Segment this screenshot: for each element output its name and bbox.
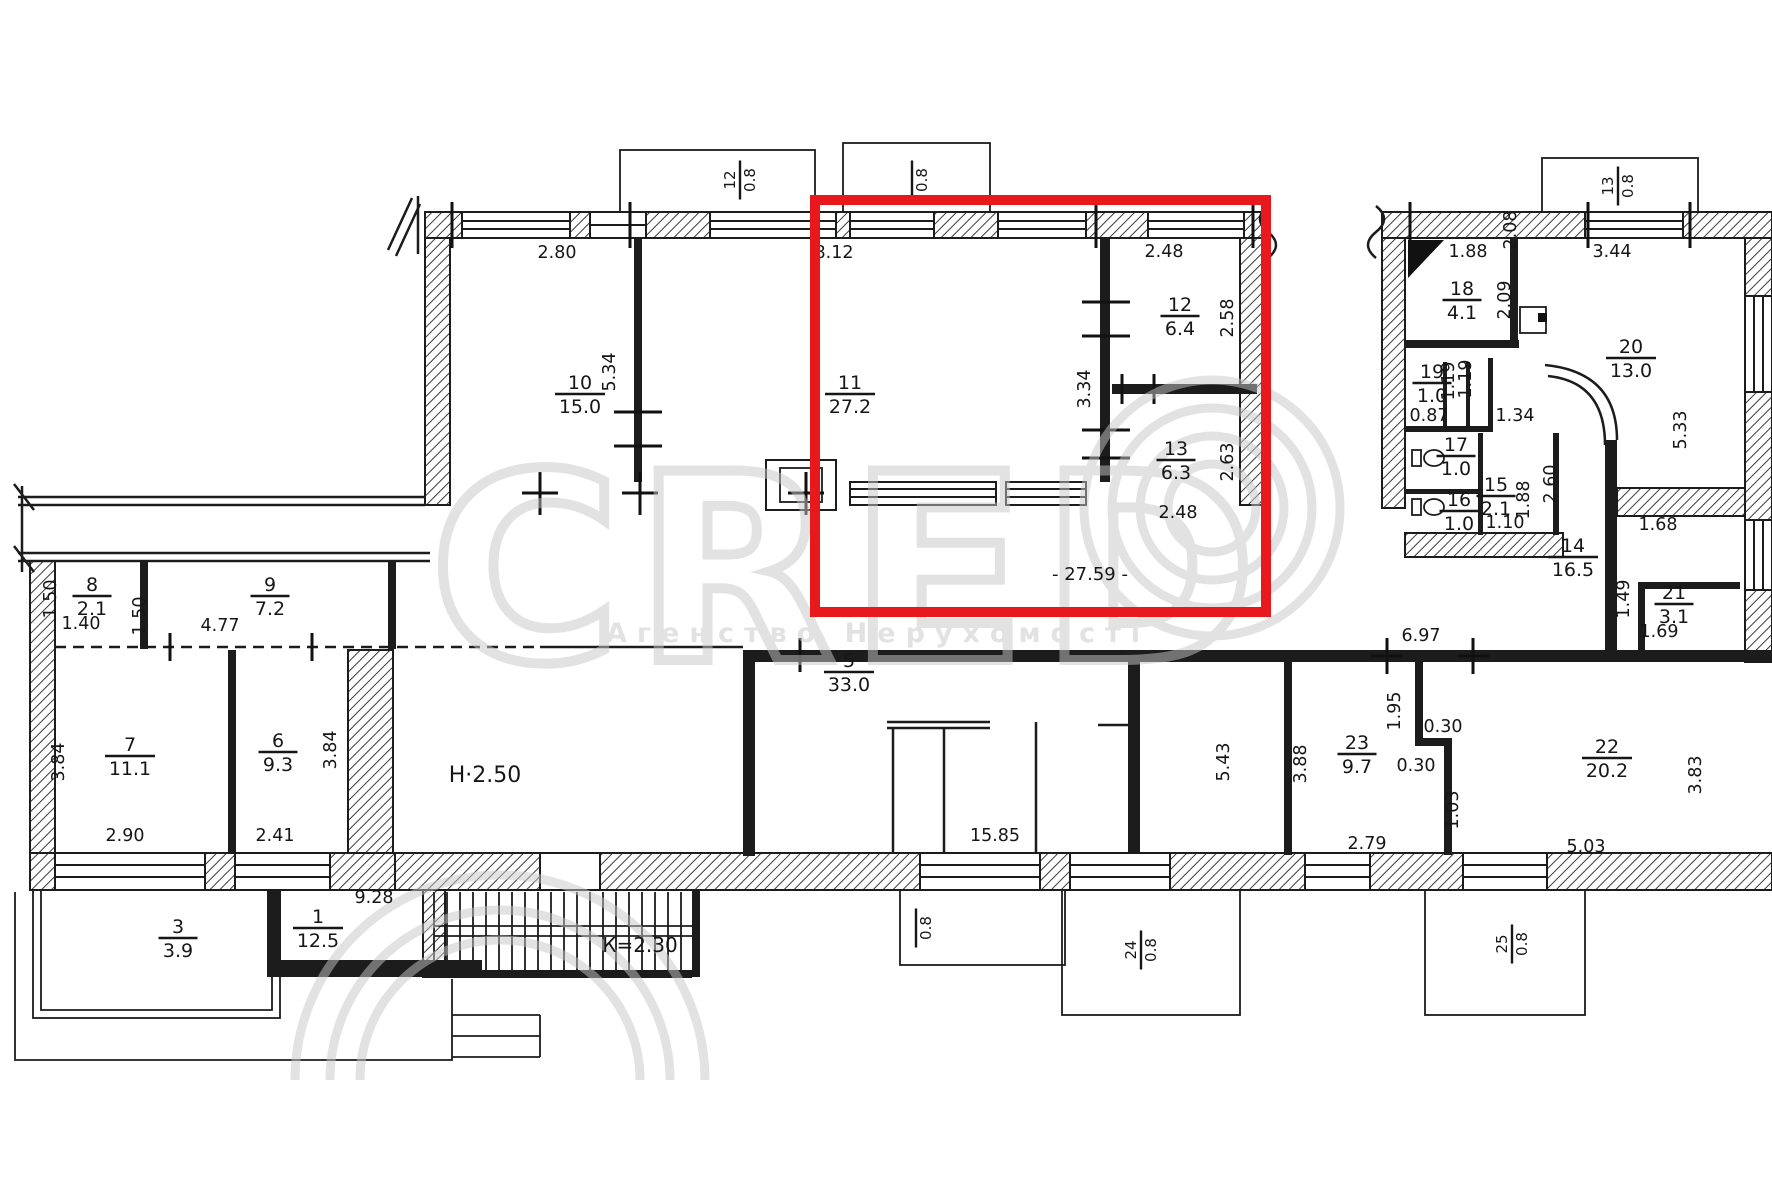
dimension-label: 5.34: [600, 353, 620, 392]
room-label-area: 1.0: [1441, 458, 1471, 480]
balcony-label: 130.8: [1599, 167, 1637, 206]
balcony-label-area: 0.8: [1513, 932, 1531, 956]
dimension-label: 1.50: [130, 597, 150, 636]
room-label-area: 33.0: [828, 674, 870, 696]
dimension-label: 9.28: [355, 888, 394, 908]
room-label-number: 14: [1561, 535, 1585, 557]
room-label-area: 12.5: [297, 930, 339, 952]
dimension-label: 1.69: [1640, 622, 1679, 642]
dimension-label: 2.63: [1218, 443, 1238, 482]
annotation-label: К=2.30: [602, 933, 678, 957]
room-label-number: 12: [1168, 294, 1192, 316]
dimension-label: 5.03: [1567, 837, 1606, 857]
room-label: 711.1: [105, 734, 155, 780]
dimension-label: 1.49: [1614, 580, 1634, 619]
annotation-label: Н·2.50: [449, 763, 522, 788]
dimension-label: 2.90: [106, 826, 145, 846]
room-label-number: 9: [264, 574, 276, 596]
balcony-label-area: 0.8: [1619, 174, 1637, 198]
dimension-label: 0.87: [1410, 406, 1449, 426]
dimension-label: 1.88: [1514, 481, 1534, 520]
room-label-area: 9.3: [263, 754, 293, 776]
dimension-label: 2.58: [1218, 299, 1238, 338]
room-label-number: 15: [1484, 474, 1508, 496]
room-label-number: 21: [1662, 582, 1686, 604]
dimension-label: 2.60: [1541, 465, 1561, 504]
room-label-number: 10: [568, 372, 592, 394]
dimension-label: 2.09: [1495, 281, 1515, 320]
dimension-label: 2.48: [1145, 242, 1184, 262]
room-label: 239.7: [1338, 732, 1377, 778]
toilet-icon: [1412, 450, 1444, 466]
dimension-label: 6.97: [1402, 626, 1441, 646]
room-label-number: 17: [1444, 434, 1468, 456]
room-label-number: 7: [124, 734, 136, 756]
dimension-label: 1.68: [1639, 515, 1678, 535]
balcony-label-number: 25: [1493, 934, 1511, 953]
room-label: 161.0: [1440, 489, 1479, 535]
dimension-label: 1.03: [1443, 791, 1463, 830]
dimension-label: 15.85: [970, 826, 1020, 846]
balcony-label-number: 13: [1599, 176, 1617, 195]
room-label-number: 23: [1345, 732, 1369, 754]
room-label-number: 3: [172, 916, 184, 938]
annotation-label: - 27.59 -: [1052, 564, 1128, 585]
room-label-number: 20: [1619, 336, 1643, 358]
balcony-label-area: 0.8: [913, 168, 931, 192]
room-label-number: 16: [1447, 489, 1471, 511]
room-label-area: 4.1: [1447, 302, 1477, 324]
dimension-label: 3.34: [1075, 370, 1095, 409]
dimension-label: 3.84: [321, 731, 341, 770]
room-label: 33.9: [159, 916, 198, 962]
room-label: 126.4: [1161, 294, 1200, 340]
dimension-label: 2.48: [1159, 503, 1198, 523]
floorplan-drawing: CRED Агенство Нерухомості 1015.01127.212…: [0, 0, 1772, 1181]
dimension-label: 2.08: [1501, 211, 1521, 250]
room-label-area: 9.7: [1342, 756, 1372, 778]
dimension-label: 3.44: [1593, 242, 1632, 262]
room-label: 1127.2: [825, 372, 875, 418]
room-label-number: 11: [838, 372, 862, 394]
watermark-subtitle: Агенство Нерухомості: [606, 618, 1150, 649]
balcony-label: 120.8: [721, 161, 759, 200]
room-label-number: 18: [1450, 278, 1474, 300]
dimension-label: 1.19: [1456, 360, 1476, 399]
room-label-area: 1.0: [1444, 513, 1474, 535]
balcony-label: 250.8: [1493, 925, 1531, 964]
dimension-label: 3.84: [49, 743, 69, 782]
room-label-number: 5: [843, 650, 855, 672]
room-label-area: 20.2: [1586, 760, 1628, 782]
room-label-area: 16.5: [1552, 559, 1594, 581]
balcony-label-number: 24: [1122, 940, 1140, 959]
dimension-label: 1.95: [1385, 692, 1405, 731]
room-label-number: 22: [1595, 736, 1619, 758]
balcony-label: 240.8: [1122, 931, 1160, 970]
room-label: 171.0: [1437, 434, 1476, 480]
room-label: 69.3: [259, 730, 298, 776]
dimension-label: 3.83: [1686, 756, 1706, 795]
balcony-label-area: 0.8: [741, 168, 759, 192]
dimension-label: 2.41: [256, 826, 295, 846]
shaft-box-inner: [1538, 313, 1547, 322]
toilet-icon: [1412, 499, 1444, 515]
room-label: 112.5: [293, 906, 343, 952]
dimension-label: 5.43: [1214, 743, 1234, 782]
room-label: 2013.0: [1606, 336, 1656, 382]
dimension-label: 1.34: [1496, 406, 1535, 426]
dimension-label: 1.40: [62, 614, 101, 634]
floorplan-page: CRED Агенство Нерухомості 1015.01127.212…: [0, 0, 1772, 1181]
room-label: 2220.2: [1582, 736, 1632, 782]
room-label-area: 11.1: [109, 758, 151, 780]
room-label: 184.1: [1443, 278, 1482, 324]
balcony-label-area: 0.8: [1142, 938, 1160, 962]
balcony-label-number: 12: [721, 170, 739, 189]
room-label-number: 8: [86, 574, 98, 596]
balcony-label-area: 0.8: [917, 916, 935, 940]
dimension-label: 0.30: [1397, 756, 1436, 776]
dimension-label: 4.77: [201, 616, 240, 636]
room-label-area: 15.0: [559, 396, 601, 418]
room-label-number: 6: [272, 730, 284, 752]
dimension-label: 1.88: [1449, 242, 1488, 262]
room-label-number: 1: [312, 906, 324, 928]
room-label-number: 13: [1164, 438, 1188, 460]
room-label-area: 6.4: [1165, 318, 1195, 340]
dimension-label: 1.50: [41, 580, 61, 619]
balcony-label: 0.8: [912, 161, 931, 200]
room-label-area: 27.2: [829, 396, 871, 418]
room-label: 97.2: [251, 574, 290, 620]
room-label: 1015.0: [555, 372, 605, 418]
dimension-label: 3.88: [1291, 745, 1311, 784]
room-label-area: 3.9: [163, 940, 193, 962]
balcony-label: 0.8: [916, 909, 935, 948]
dimension-label: 2.80: [538, 243, 577, 263]
room-label-area: 13.0: [1610, 360, 1652, 382]
dimension-label: 0.30: [1424, 717, 1463, 737]
dimension-label: 8.12: [815, 243, 854, 263]
room-label-area: 6.3: [1161, 462, 1191, 484]
dimension-label: 5.33: [1671, 411, 1691, 450]
dimension-label: 2.79: [1348, 834, 1387, 854]
vent-triangle: [1408, 240, 1444, 278]
room-label-area: 7.2: [255, 598, 285, 620]
